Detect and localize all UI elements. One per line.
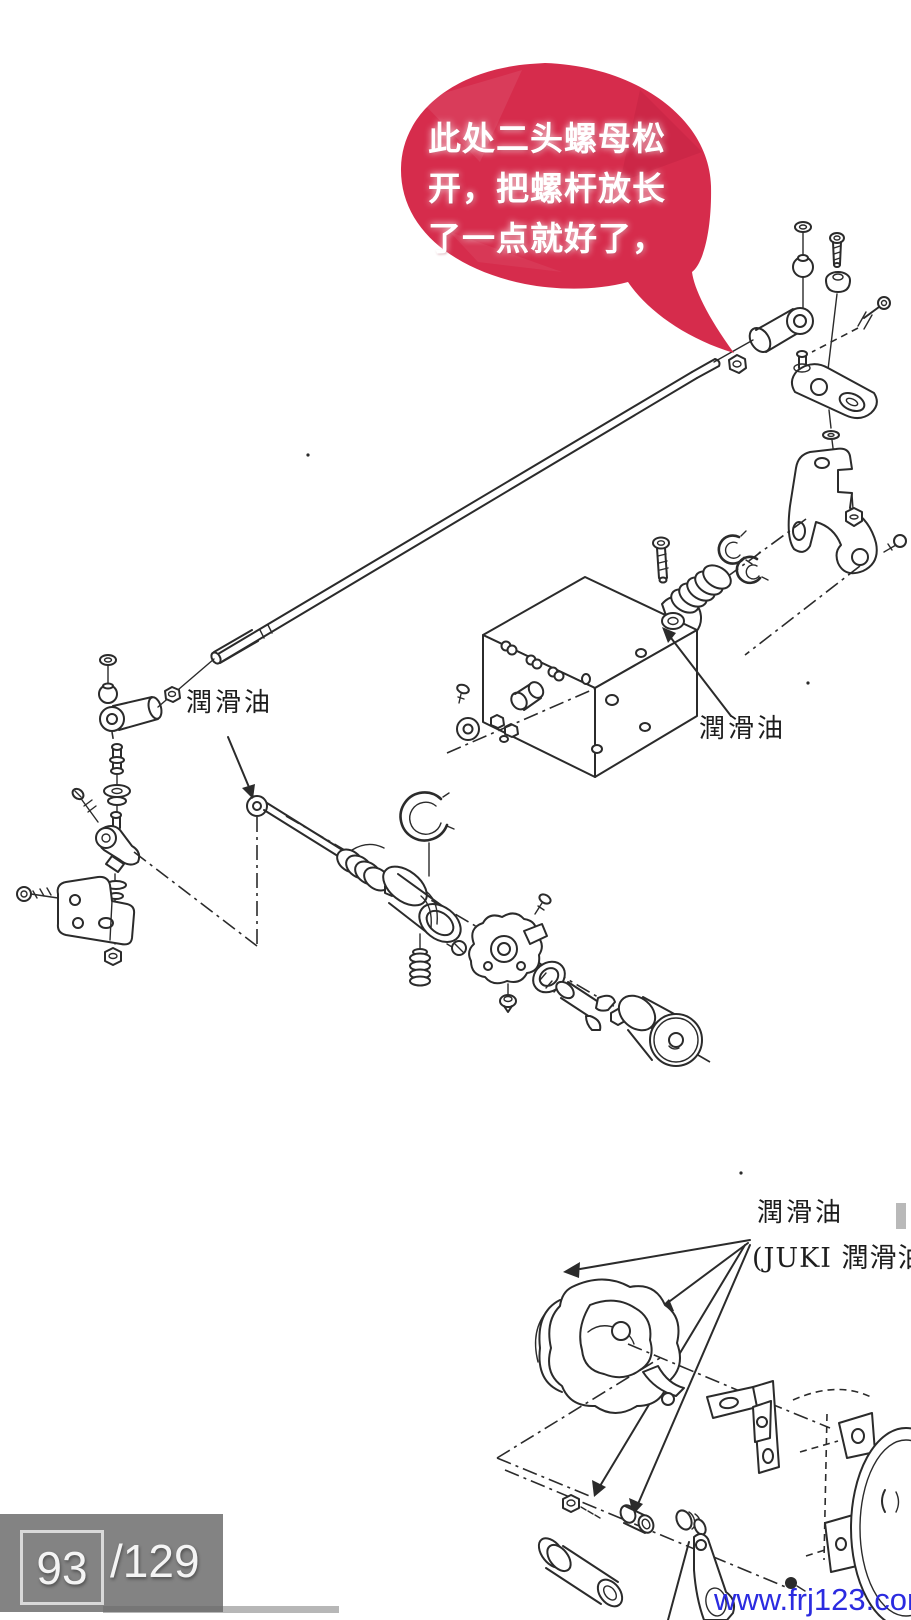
- bubble-line-3: 了一点就好了，: [428, 214, 728, 264]
- bubble-line-1: 此处二头螺母松: [428, 114, 728, 164]
- site-watermark: www.frj123.com: [714, 1582, 911, 1618]
- manual-page: 此处二头螺母松 开，把螺杆放长 了一点就好了， 潤滑油 潤滑油 潤滑油 (JUK…: [0, 0, 911, 1620]
- page-indicator-overlay[interactable]: 93 /129: [0, 1514, 223, 1612]
- bubble-annotation-text: 此处二头螺母松 开，把螺杆放长 了一点就好了，: [428, 114, 728, 264]
- rod-end-and-lever-cluster: [714, 222, 890, 418]
- total-pages-label: /129: [110, 1534, 200, 1588]
- lubricant-label-left: 潤滑油: [186, 682, 273, 719]
- bubble-line-2: 开，把螺杆放长: [428, 164, 728, 214]
- lubricant-label-right: 潤滑油: [699, 708, 786, 745]
- vertical-scrollbar-thumb[interactable]: [896, 1203, 906, 1229]
- current-page-number: 93: [36, 1541, 87, 1595]
- juki-lubricant-note: (JUKI 潤滑油: [752, 1236, 911, 1275]
- current-page-box[interactable]: 93: [20, 1530, 104, 1605]
- clutch-shaft-chain: [264, 792, 710, 1066]
- lubricant-label-bottom: 潤滑油: [757, 1192, 844, 1229]
